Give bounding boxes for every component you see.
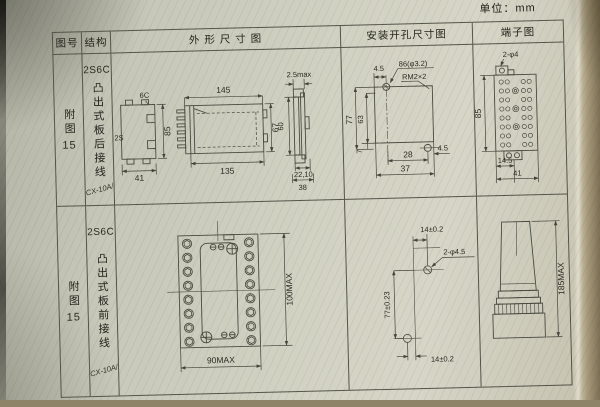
dim-label: 100MAX xyxy=(284,273,295,306)
dim-label: 41 xyxy=(135,173,145,183)
dim-label: 38 xyxy=(298,183,307,192)
structure-desc: 凸出式板后接线 xyxy=(89,81,107,179)
unit-label: 单位：mm xyxy=(479,0,536,17)
fig-label: 附图 xyxy=(61,108,78,136)
outline-drawing-rear-wiring: 6C 2S 85 41 xyxy=(111,48,345,206)
structure-cell-row2: 2S6C 凸出式板前接线 JCX-10A/5 xyxy=(86,206,120,397)
terminal-cell-row1: 2-φ4 85 14.5 41 xyxy=(473,43,567,197)
mounting-cell-row2: 14±0.2 2-φ4.5 77±0.23 14±0.2 xyxy=(345,197,482,390)
header-terminal: 端子图 xyxy=(473,21,564,45)
dim-label: 63 xyxy=(356,115,365,124)
structure-desc: 凸出式板前接线 xyxy=(93,253,111,351)
dim-label: 135 xyxy=(220,166,235,176)
header-structure: 结构 xyxy=(82,32,112,55)
dim-label: 6C xyxy=(139,91,149,100)
fig-label: 附图 xyxy=(65,280,82,308)
dim-label: 145 xyxy=(216,85,231,95)
photo-left-edge xyxy=(0,0,6,400)
fig-number: 15 xyxy=(67,311,82,323)
fig-no-cell-row2: 附图 15 xyxy=(57,206,91,397)
terminal-holes xyxy=(499,79,533,147)
type-code: JCX-10A/5 xyxy=(86,361,120,379)
dim-label: 85 xyxy=(162,126,172,136)
dim-label: 77±0.23 xyxy=(382,291,392,318)
profile-dims xyxy=(121,104,168,175)
side-dims xyxy=(184,96,275,168)
mounting-cell-row1: 4.5 86(φ3.2) RM2×2 77 63 7 28 37 4.5 xyxy=(341,45,477,200)
dim-label: 86(φ3.2) xyxy=(399,59,428,69)
dim-label: 7 xyxy=(355,149,364,153)
printed-sheet: 单位：mm 图号 结构 外 形 尺 寸 图 安装开孔尺寸图 端子图 附图 15 … xyxy=(0,0,600,407)
panel-view xyxy=(293,89,310,163)
dim-label: 14±0.2 xyxy=(420,225,443,235)
type-code: JCX-10A/5 xyxy=(82,180,115,198)
dim-label: 85 xyxy=(473,109,483,119)
relay-side-view xyxy=(491,221,546,338)
mounting-drawing-rear-wiring: 4.5 86(φ3.2) RM2×2 77 63 7 28 37 4.5 xyxy=(341,45,476,200)
header-fig-no: 图号 xyxy=(53,32,83,55)
terminal-drawing-front-wiring: 185MAX xyxy=(477,195,571,387)
model-code: 2S6C xyxy=(83,65,110,77)
terminal-cell-row2: 185MAX xyxy=(477,194,572,386)
dim-label: 22,10 xyxy=(294,170,313,179)
outline-cell-row1: 6C 2S 85 41 xyxy=(111,48,345,206)
dim-label: 14.5 xyxy=(498,156,513,165)
mounting-dims xyxy=(355,67,451,178)
terminal-drawing-rear-wiring: 2-φ4 85 14.5 41 xyxy=(473,43,566,197)
front-dims xyxy=(178,233,293,372)
dim-label: 4.5 xyxy=(373,64,384,73)
dim-label: 37 xyxy=(400,163,410,173)
fig-no-cell-row1: 附图 15 xyxy=(53,54,86,207)
dim-label: 2S xyxy=(114,133,123,142)
dim-label: 41 xyxy=(513,169,522,178)
dim-label: 90MAX xyxy=(207,355,235,366)
dim-label: 60 xyxy=(276,122,285,131)
dim-label: RM2×2 xyxy=(402,72,427,82)
dim-label: 2.5max xyxy=(287,70,312,80)
side-view xyxy=(177,104,268,154)
dim-label: 4.5 xyxy=(437,143,448,152)
scanned-catalog-page: { "page": { "unit_label": "单位：mm" }, "ta… xyxy=(0,0,600,400)
dim-label: 28 xyxy=(403,149,413,159)
structure-cell-row1: 2S6C 凸出式板后接线 JCX-10A/5 xyxy=(82,54,115,207)
fig-number: 15 xyxy=(62,139,77,151)
profile-view xyxy=(121,100,157,165)
dim-label: 2-φ4 xyxy=(503,50,519,59)
page-edge-shadow-top xyxy=(566,0,600,90)
terminal-screws xyxy=(182,238,256,347)
dim-label: 14±0.2 xyxy=(431,354,454,364)
dim-label: 185MAX xyxy=(556,262,567,295)
mounting-drawing-front-wiring: 14±0.2 2-φ4.5 77±0.23 14±0.2 xyxy=(345,197,481,390)
outline-cell-row2: 100MAX 90MAX xyxy=(115,200,350,396)
dim-label: 2-φ4.5 xyxy=(443,247,465,257)
mounting-holes xyxy=(391,236,446,351)
header-mounting: 安装开孔尺寸图 xyxy=(341,23,473,48)
dimension-table: 图号 结构 外 形 尺 寸 图 安装开孔尺寸图 端子图 附图 15 2S6C 凸… xyxy=(52,20,573,398)
outline-drawing-front-wiring: 100MAX 90MAX xyxy=(115,200,350,396)
model-code: 2S6C xyxy=(87,227,114,239)
dim-label: 77 xyxy=(344,115,354,125)
